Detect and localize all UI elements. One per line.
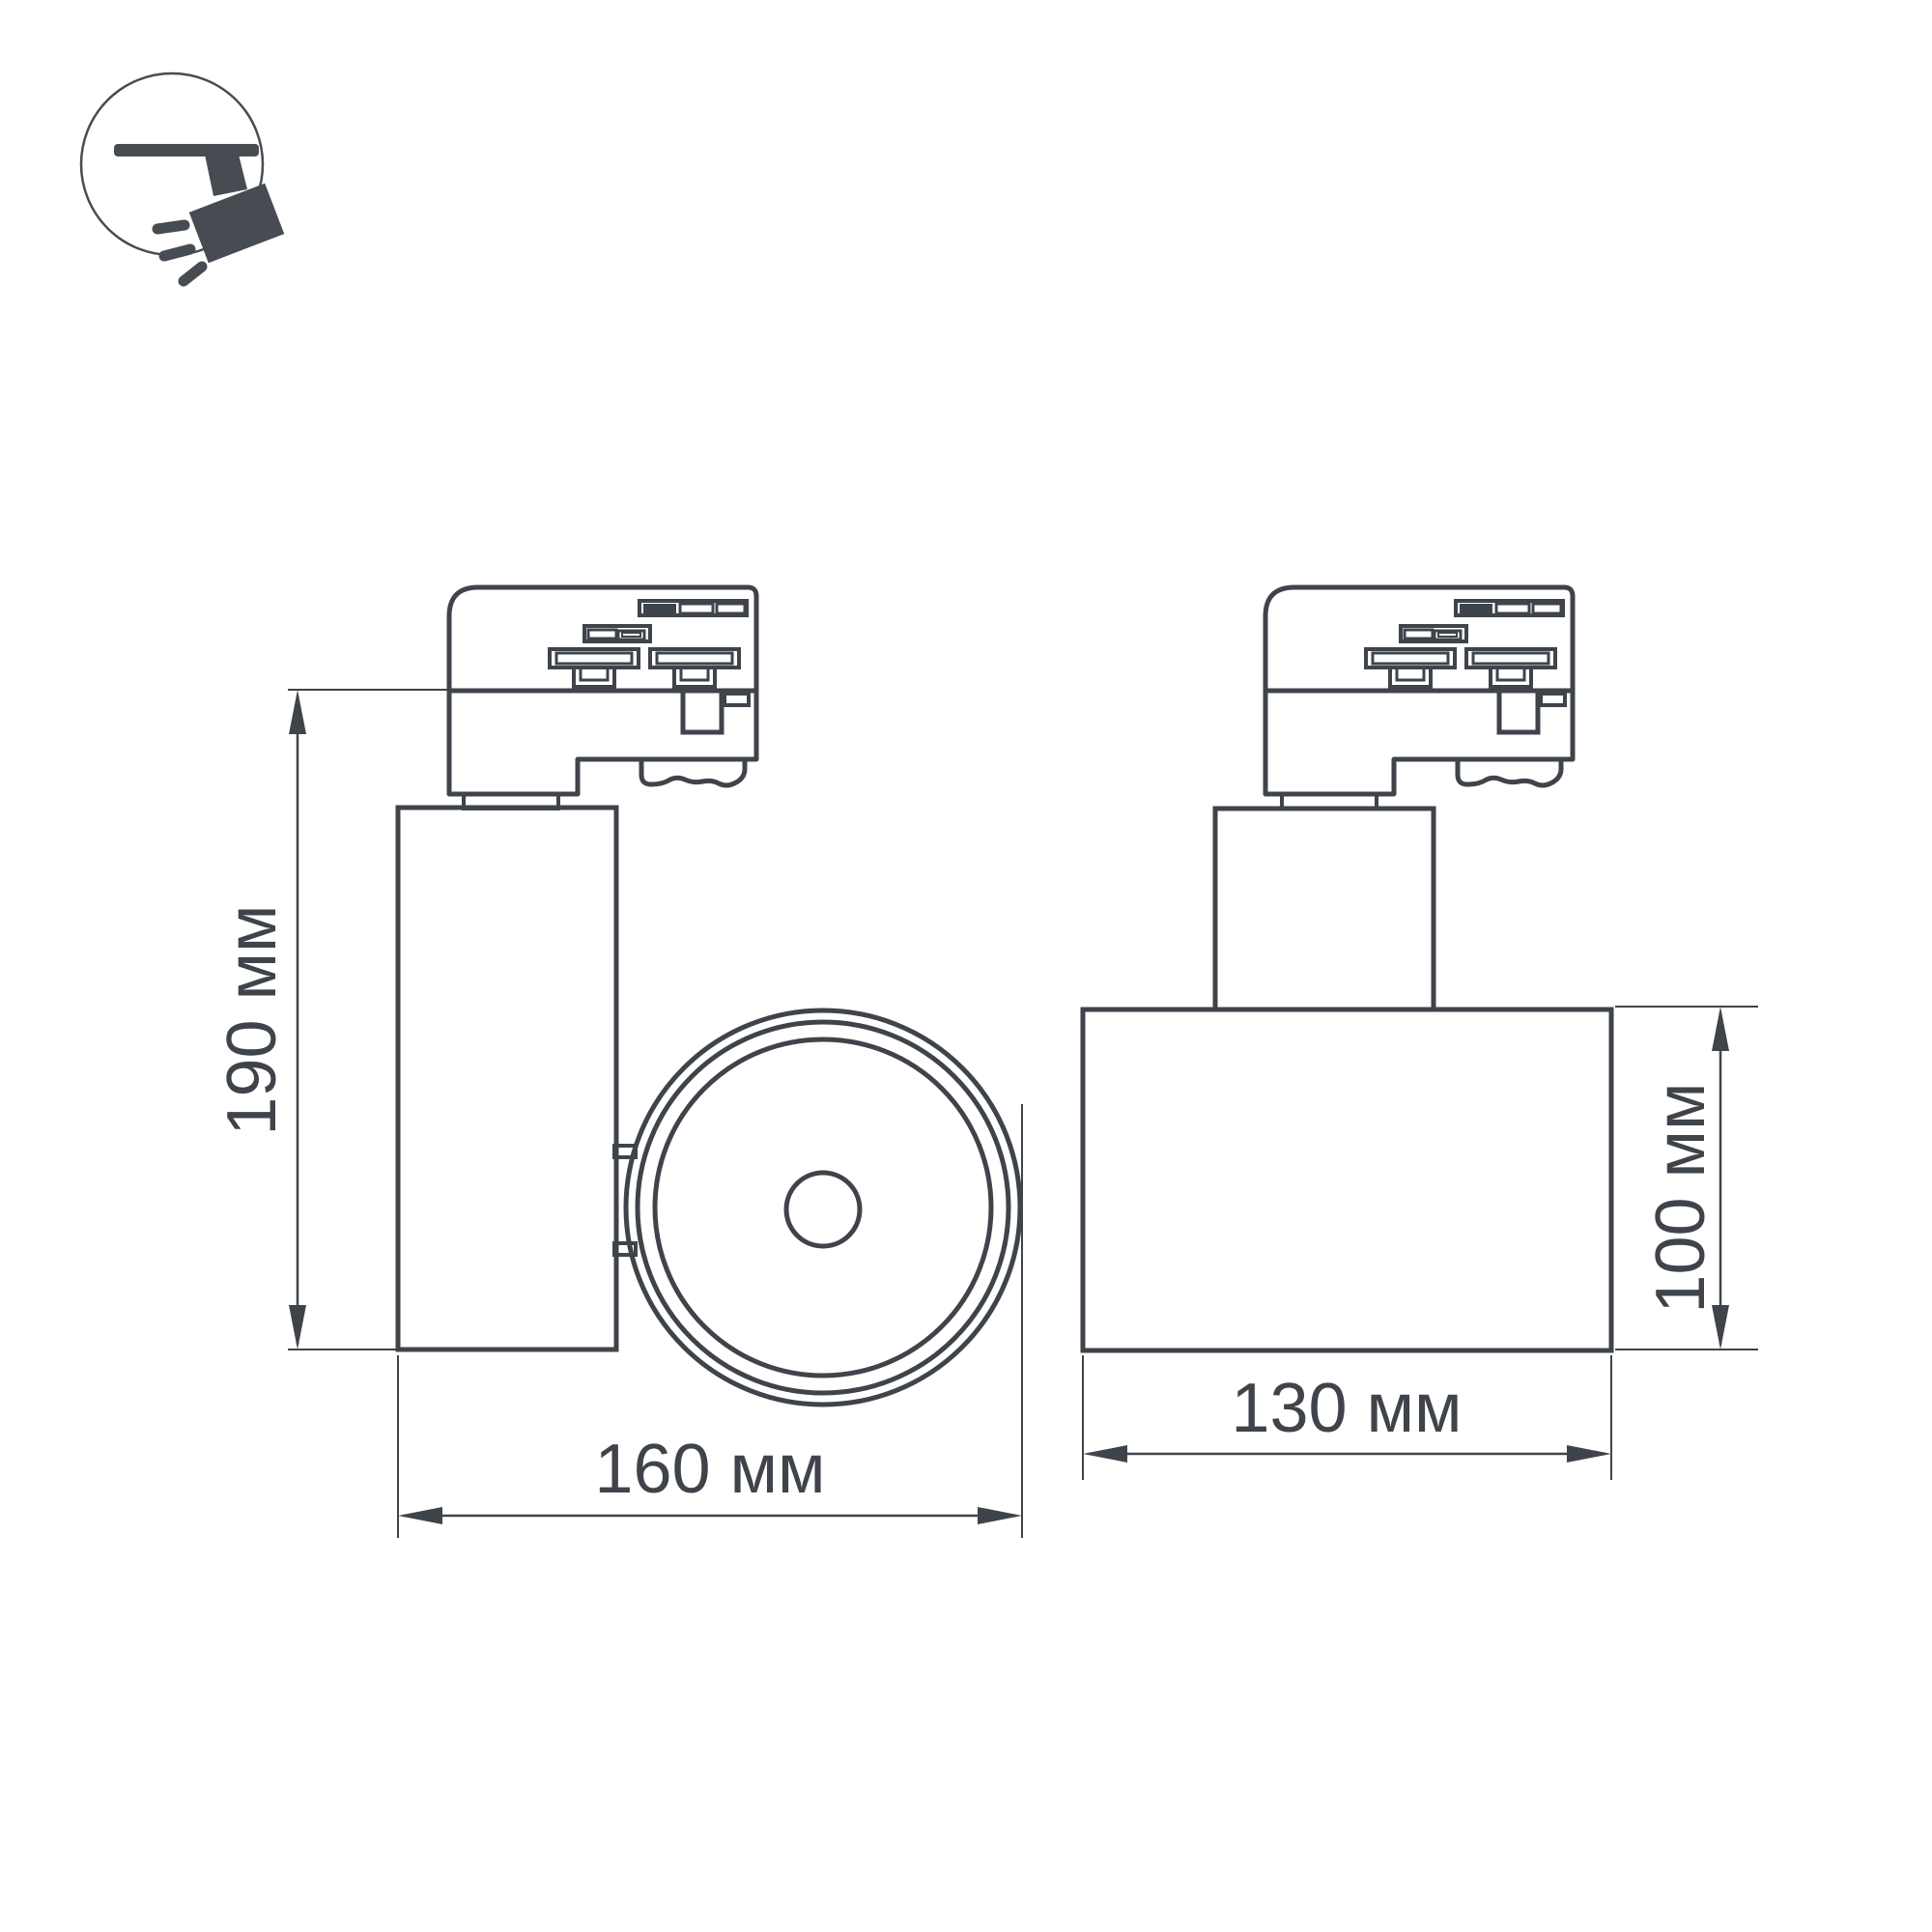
lens-center-dot [786, 1173, 860, 1246]
icon-light-ray [184, 267, 202, 281]
dimension-width: 130 мм [1083, 1355, 1611, 1480]
dimension-height-label: 190 мм [213, 904, 291, 1135]
lamp-body-front [1083, 1009, 1611, 1350]
track-adapter [1265, 587, 1573, 794]
dimension-body-height-label: 100 мм [1642, 1082, 1719, 1313]
dimension-height: 190 мм [213, 690, 449, 1350]
arrowhead-right [1567, 1445, 1611, 1463]
icon-light-ray [157, 225, 185, 229]
lens-ring-outer [626, 1010, 1020, 1405]
track-spotlight-icon [81, 73, 284, 281]
dimension-depth: 160 мм [398, 1104, 1022, 1538]
lens-ring-middle [638, 1022, 1009, 1393]
lens-ring-inner [655, 1039, 991, 1376]
track-adapter [449, 587, 756, 794]
arrowhead-left [398, 1507, 442, 1524]
arrowhead-up [289, 690, 306, 734]
arrowhead-right [978, 1507, 1022, 1524]
icon-lamp-head [189, 184, 284, 263]
icon-light-ray [164, 249, 190, 256]
technical-drawing: 190 мм 160 мм 130 мм 100 мм [0, 0, 1932, 1932]
arrowhead-up [1712, 1007, 1729, 1051]
front-view [1083, 587, 1611, 1350]
lamp-body-side [398, 808, 616, 1350]
side-view [398, 587, 1020, 1405]
dimension-width-label: 130 мм [1231, 1370, 1462, 1447]
dimension-depth-label: 160 мм [594, 1431, 825, 1508]
drawing-canvas: 190 мм 160 мм 130 мм 100 мм [0, 0, 1932, 1932]
lamp-stem-front [1215, 809, 1434, 1009]
dimension-body-height: 100 мм [1615, 1007, 1758, 1350]
arrowhead-down [289, 1305, 306, 1350]
arrowhead-left [1083, 1445, 1127, 1463]
icon-stem [205, 155, 247, 196]
